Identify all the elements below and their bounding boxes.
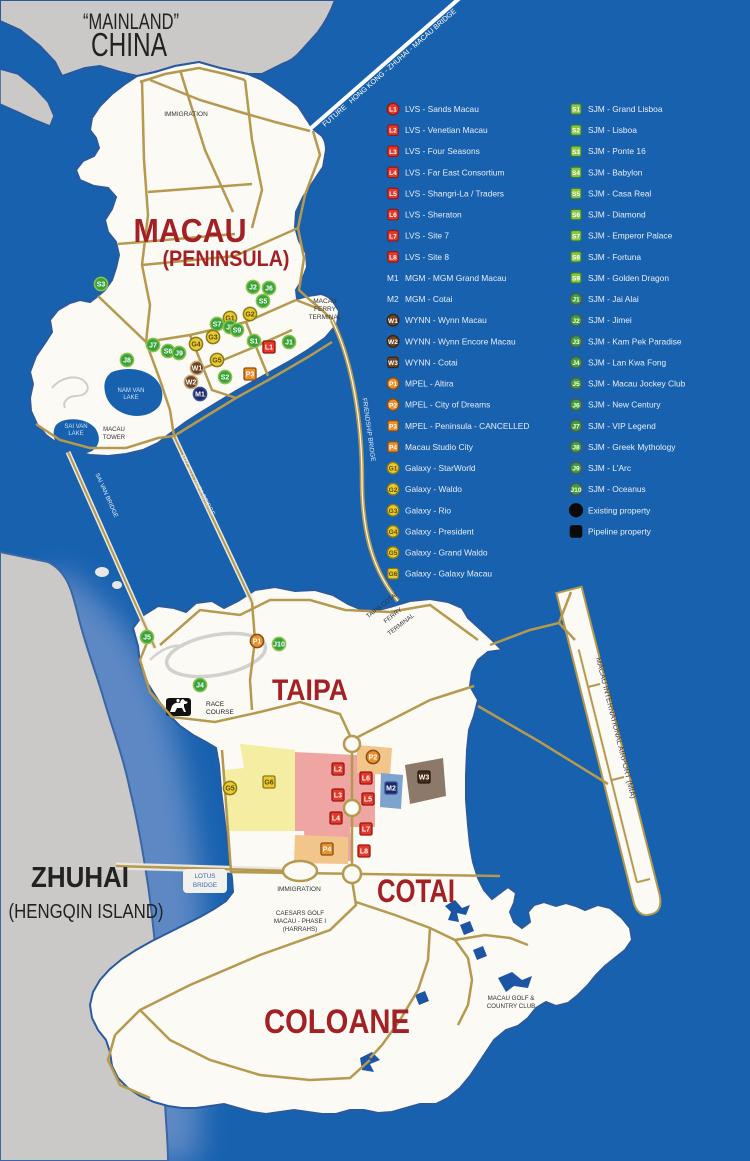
- svg-text:W2: W2: [388, 339, 398, 346]
- svg-text:SJM - Diamond: SJM - Diamond: [588, 210, 646, 220]
- svg-text:L3: L3: [389, 149, 397, 156]
- svg-text:L5: L5: [364, 797, 372, 804]
- svg-text:Macau Studio City: Macau Studio City: [405, 442, 474, 452]
- svg-text:Galaxy - Galaxy Macau: Galaxy - Galaxy Macau: [405, 569, 492, 579]
- svg-text:Galaxy - StarWorld: Galaxy - StarWorld: [405, 463, 476, 473]
- svg-text:L6: L6: [362, 776, 370, 783]
- svg-text:IMMIGRATION: IMMIGRATION: [164, 111, 208, 118]
- svg-text:SJM - Lan Kwa Fong: SJM - Lan Kwa Fong: [588, 357, 667, 367]
- svg-text:RACE: RACE: [206, 701, 225, 708]
- svg-text:L7: L7: [362, 827, 370, 834]
- svg-text:J8: J8: [123, 358, 131, 365]
- svg-text:SJM - New Century: SJM - New Century: [588, 400, 661, 410]
- svg-text:CAESARS GOLF: CAESARS GOLF: [276, 910, 324, 917]
- svg-text:SJM - Jai Alai: SJM - Jai Alai: [588, 294, 639, 304]
- svg-text:G5: G5: [225, 786, 234, 793]
- svg-text:L5: L5: [389, 191, 397, 198]
- svg-text:Existing property: Existing property: [588, 505, 651, 515]
- svg-text:G6: G6: [264, 780, 273, 787]
- svg-text:LOTUS: LOTUS: [195, 873, 216, 880]
- svg-text:J2: J2: [572, 318, 580, 325]
- svg-text:L1: L1: [265, 345, 273, 352]
- svg-text:M2: M2: [387, 294, 399, 304]
- svg-text:L8: L8: [389, 254, 397, 261]
- svg-text:L1: L1: [389, 107, 397, 114]
- svg-text:P2: P2: [389, 402, 397, 409]
- svg-text:W2: W2: [186, 380, 197, 387]
- svg-text:SJM - L'Arc: SJM - L'Arc: [588, 463, 631, 473]
- svg-text:SJM - Casa Real: SJM - Casa Real: [588, 188, 651, 198]
- svg-text:J4: J4: [196, 683, 204, 690]
- svg-text:M1: M1: [387, 273, 399, 283]
- svg-text:P3: P3: [246, 372, 255, 379]
- svg-text:S3: S3: [572, 149, 580, 156]
- svg-text:P1: P1: [389, 381, 397, 388]
- svg-text:NAM VAN: NAM VAN: [118, 388, 145, 394]
- svg-text:J4: J4: [572, 360, 580, 367]
- svg-text:CHINA: CHINA: [91, 26, 167, 63]
- svg-text:J1: J1: [285, 340, 293, 347]
- svg-text:SJM - Babylon: SJM - Babylon: [588, 167, 643, 177]
- svg-text:Pipeline property: Pipeline property: [588, 526, 652, 536]
- svg-text:MACAU - PHASE I: MACAU - PHASE I: [274, 918, 327, 925]
- svg-text:S4: S4: [572, 170, 580, 177]
- svg-text:WYNN - Cotai: WYNN - Cotai: [405, 357, 458, 367]
- svg-text:WYNN - Wynn Encore Macau: WYNN - Wynn Encore Macau: [405, 336, 516, 346]
- svg-text:COURSE: COURSE: [206, 709, 234, 716]
- svg-text:S8: S8: [572, 254, 580, 261]
- svg-text:LAKE: LAKE: [68, 431, 83, 437]
- svg-text:J7: J7: [149, 343, 157, 350]
- svg-text:L4: L4: [332, 816, 340, 823]
- svg-text:G5: G5: [389, 550, 398, 557]
- svg-text:LVS - Far East Consortium: LVS - Far East Consortium: [405, 167, 504, 177]
- svg-text:MACAU GOLF &: MACAU GOLF &: [488, 995, 536, 1002]
- svg-text:MPEL - Altira: MPEL - Altira: [405, 379, 454, 389]
- svg-text:J2: J2: [249, 285, 257, 292]
- svg-text:S6: S6: [572, 212, 580, 219]
- svg-text:MGM - MGM Grand Macau: MGM - MGM Grand Macau: [405, 273, 507, 283]
- svg-text:(HENGQIN ISLAND): (HENGQIN ISLAND): [9, 901, 164, 923]
- svg-text:M2: M2: [386, 786, 396, 793]
- svg-text:(PENINSULA): (PENINSULA): [163, 246, 290, 271]
- svg-text:WYNN - Wynn Macau: WYNN - Wynn Macau: [405, 315, 487, 325]
- svg-text:FERRY: FERRY: [314, 306, 337, 313]
- svg-text:L7: L7: [389, 233, 397, 240]
- svg-text:LVS - Site 7: LVS - Site 7: [405, 231, 449, 241]
- svg-text:J9: J9: [572, 466, 580, 473]
- svg-text:J8: J8: [572, 445, 580, 452]
- svg-text:ZHUHAI: ZHUHAI: [31, 862, 129, 894]
- svg-text:J7: J7: [572, 423, 580, 430]
- svg-text:MPEL - City of Dreams: MPEL - City of Dreams: [405, 400, 490, 410]
- svg-text:P2: P2: [369, 755, 378, 762]
- svg-text:S1: S1: [250, 339, 259, 346]
- svg-text:COUNTRY CLUB: COUNTRY CLUB: [487, 1003, 536, 1010]
- svg-text:BRIDGE: BRIDGE: [193, 882, 217, 889]
- svg-text:MACAU: MACAU: [313, 298, 337, 305]
- svg-text:LVS - Sheraton: LVS - Sheraton: [405, 210, 462, 220]
- svg-text:G2: G2: [389, 487, 398, 494]
- svg-text:J6: J6: [265, 286, 273, 293]
- svg-text:J10: J10: [273, 642, 285, 649]
- svg-text:COLOANE: COLOANE: [264, 1003, 410, 1041]
- svg-text:G6: G6: [389, 571, 398, 578]
- svg-text:Galaxy - Waldo: Galaxy - Waldo: [405, 484, 462, 494]
- svg-text:W1: W1: [192, 366, 203, 373]
- svg-text:SAI VAN: SAI VAN: [64, 424, 87, 430]
- svg-text:P1: P1: [253, 639, 262, 646]
- svg-text:L8: L8: [360, 849, 368, 856]
- svg-text:G1: G1: [389, 466, 398, 473]
- svg-text:SJM - Macau Jockey Club: SJM - Macau Jockey Club: [588, 379, 686, 389]
- svg-text:G4: G4: [389, 529, 398, 536]
- svg-text:(HARRAHS): (HARRAHS): [283, 926, 317, 933]
- svg-text:SJM - Oceanus: SJM - Oceanus: [588, 484, 646, 494]
- svg-text:SJM - VIP Legend: SJM - VIP Legend: [588, 421, 656, 431]
- svg-text:SJM - Lisboa: SJM - Lisboa: [588, 125, 637, 135]
- svg-text:LVS - Venetian Macau: LVS - Venetian Macau: [405, 125, 488, 135]
- svg-text:S7: S7: [572, 233, 580, 240]
- svg-text:LVS - Site 8: LVS - Site 8: [405, 252, 449, 262]
- svg-text:G3: G3: [208, 335, 217, 342]
- svg-text:J10: J10: [570, 487, 581, 494]
- svg-text:SJM - Ponte 16: SJM - Ponte 16: [588, 146, 646, 156]
- svg-text:P4: P4: [389, 445, 397, 452]
- svg-text:G3: G3: [389, 508, 398, 515]
- svg-text:SJM - Grand Lisboa: SJM - Grand Lisboa: [588, 104, 663, 114]
- svg-text:G2: G2: [245, 312, 254, 319]
- svg-text:MACAU: MACAU: [103, 427, 125, 433]
- svg-text:J1: J1: [572, 297, 580, 304]
- svg-text:SJM - Greek Mythology: SJM - Greek Mythology: [588, 442, 676, 452]
- svg-text:J5: J5: [143, 635, 151, 642]
- svg-text:S9: S9: [233, 328, 242, 335]
- svg-text:P3: P3: [389, 423, 397, 430]
- svg-text:L6: L6: [389, 212, 397, 219]
- svg-text:J6: J6: [572, 402, 580, 409]
- svg-text:SJM - Fortuna: SJM - Fortuna: [588, 252, 641, 262]
- svg-text:MPEL - Peninsula - CANCELLED: MPEL - Peninsula - CANCELLED: [405, 421, 529, 431]
- svg-text:TOWER: TOWER: [103, 435, 126, 441]
- svg-text:L4: L4: [389, 170, 397, 177]
- svg-text:L3: L3: [334, 793, 342, 800]
- svg-text:S1: S1: [572, 107, 580, 114]
- svg-text:P4: P4: [323, 847, 332, 854]
- svg-text:SJM - Emperor Palace: SJM - Emperor Palace: [588, 231, 673, 241]
- svg-text:LVS - Shangri-La / Traders: LVS - Shangri-La / Traders: [405, 188, 504, 198]
- svg-text:MACAU: MACAU: [134, 212, 247, 249]
- svg-text:S3: S3: [97, 282, 106, 289]
- svg-text:G4: G4: [191, 342, 200, 349]
- svg-text:S2: S2: [572, 128, 580, 135]
- svg-text:LVS - Four Seasons: LVS - Four Seasons: [405, 146, 480, 156]
- svg-text:SJM - Kam Pek Paradise: SJM - Kam Pek Paradise: [588, 336, 682, 346]
- svg-text:Galaxy - President: Galaxy - President: [405, 526, 475, 536]
- svg-text:MGM - Cotai: MGM - Cotai: [405, 294, 453, 304]
- svg-text:SJM - Golden Dragon: SJM - Golden Dragon: [588, 273, 669, 283]
- svg-text:M1: M1: [195, 392, 205, 399]
- svg-text:W3: W3: [388, 360, 398, 367]
- svg-text:G5: G5: [212, 358, 221, 365]
- svg-text:COTAI: COTAI: [377, 873, 455, 909]
- svg-text:W3: W3: [419, 775, 430, 782]
- svg-text:L2: L2: [389, 128, 397, 135]
- svg-text:IMMIGRATION: IMMIGRATION: [277, 886, 321, 893]
- svg-text:SJM - Jimei: SJM - Jimei: [588, 315, 632, 325]
- svg-text:J5: J5: [572, 381, 580, 388]
- svg-text:TAIPA: TAIPA: [272, 674, 348, 707]
- svg-text:LAKE: LAKE: [123, 395, 138, 401]
- svg-text:J3: J3: [572, 339, 580, 346]
- svg-text:S5: S5: [572, 191, 580, 198]
- svg-text:Galaxy - Rio: Galaxy - Rio: [405, 505, 451, 515]
- svg-text:J9: J9: [175, 351, 183, 358]
- svg-text:S7: S7: [213, 322, 222, 329]
- svg-text:W1: W1: [388, 318, 398, 325]
- svg-text:Galaxy - Grand Waldo: Galaxy - Grand Waldo: [405, 548, 488, 558]
- svg-text:L2: L2: [334, 767, 342, 774]
- svg-text:LVS - Sands Macau: LVS - Sands Macau: [405, 104, 479, 114]
- svg-text:TERMINAL: TERMINAL: [309, 314, 342, 321]
- svg-text:S5: S5: [259, 299, 268, 306]
- svg-text:S9: S9: [572, 276, 580, 283]
- svg-text:S6: S6: [164, 349, 173, 356]
- svg-text:S2: S2: [221, 375, 230, 382]
